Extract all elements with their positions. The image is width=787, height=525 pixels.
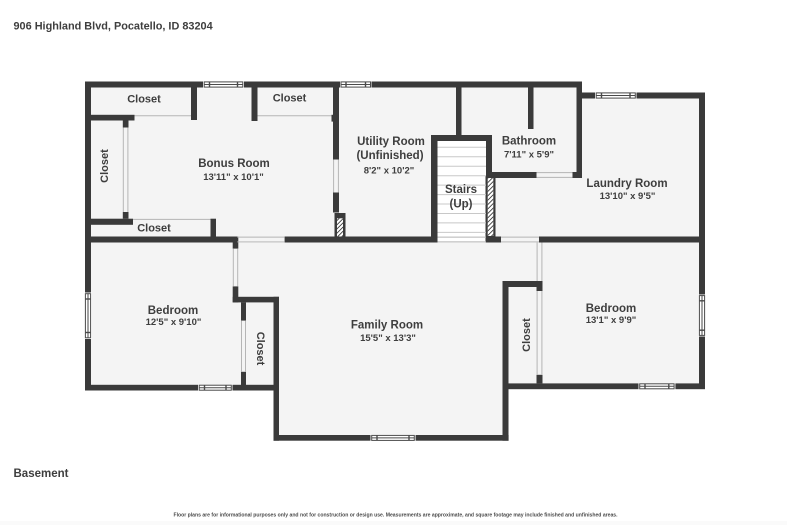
svg-text:(Up): (Up) bbox=[450, 199, 473, 211]
svg-text:Closet: Closet bbox=[99, 149, 111, 183]
svg-text:906 Highland Blvd, Pocatello,: 906 Highland Blvd, Pocatello, ID 83204 bbox=[14, 20, 213, 32]
svg-text:Bedroom: Bedroom bbox=[586, 303, 636, 315]
svg-text:Closet: Closet bbox=[127, 94, 161, 106]
svg-text:(Unfinished): (Unfinished) bbox=[356, 150, 423, 162]
svg-text:Closet: Closet bbox=[137, 223, 171, 235]
svg-text:13'11" x 10'1": 13'11" x 10'1" bbox=[203, 172, 264, 183]
svg-text:Stairs: Stairs bbox=[445, 184, 477, 196]
svg-text:Closet: Closet bbox=[273, 93, 307, 105]
svg-text:Basement: Basement bbox=[14, 468, 69, 480]
svg-text:13'10" x 9'5": 13'10" x 9'5" bbox=[600, 191, 656, 202]
svg-text:13'1" x 9'9": 13'1" x 9'9" bbox=[586, 315, 637, 326]
svg-text:Closet: Closet bbox=[521, 318, 533, 352]
svg-text:8'2" x 10'2": 8'2" x 10'2" bbox=[364, 166, 415, 177]
svg-text:Bonus Room: Bonus Room bbox=[198, 158, 270, 170]
svg-text:Floor plans are for informatio: Floor plans are for informational purpos… bbox=[173, 513, 618, 519]
svg-text:12'5" x 9'10": 12'5" x 9'10" bbox=[146, 317, 202, 328]
svg-text:Bathroom: Bathroom bbox=[502, 136, 556, 148]
svg-text:Utility Room: Utility Room bbox=[357, 136, 425, 148]
svg-text:Family Room: Family Room bbox=[351, 320, 423, 332]
svg-text:Closet: Closet bbox=[254, 332, 266, 366]
svg-text:Bedroom: Bedroom bbox=[148, 305, 198, 317]
svg-text:15'5" x 13'3": 15'5" x 13'3" bbox=[360, 333, 416, 344]
svg-text:7'11" x 5'9": 7'11" x 5'9" bbox=[504, 150, 554, 161]
svg-text:Laundry Room: Laundry Room bbox=[586, 178, 667, 190]
